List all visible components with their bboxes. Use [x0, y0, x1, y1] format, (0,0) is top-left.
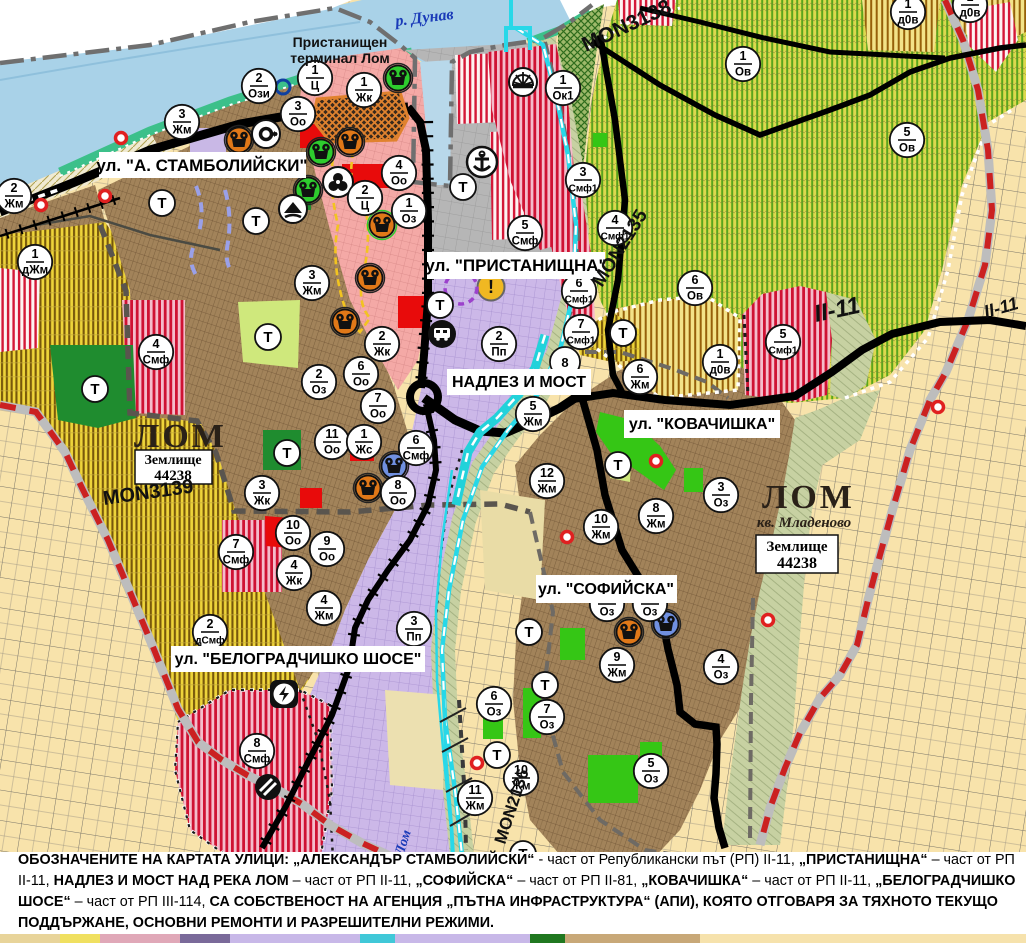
svg-text:Оз: Оз: [312, 385, 327, 397]
svg-text:Т: Т: [435, 297, 444, 314]
svg-text:1: 1: [32, 247, 39, 261]
svg-text:ОБОЗНАЧЕНИТЕ НА КАРТАТА УЛИЦИ:: ОБОЗНАЧЕНИТЕ НА КАРТАТА УЛИЦИ: „АЛЕКСАНД…: [18, 850, 1015, 868]
svg-text:4: 4: [718, 652, 725, 666]
svg-text:Ов: Ов: [735, 67, 751, 79]
svg-text:6: 6: [413, 433, 420, 447]
svg-text:5: 5: [530, 399, 537, 413]
svg-text:Т: Т: [251, 213, 260, 230]
svg-text:4: 4: [153, 337, 160, 351]
svg-text:5: 5: [522, 218, 529, 232]
svg-text:44238: 44238: [777, 555, 817, 572]
svg-text:Смф: Смф: [244, 754, 271, 766]
svg-text:Т: Т: [263, 329, 272, 346]
svg-text:6: 6: [692, 273, 699, 287]
svg-text:Жс: Жс: [355, 445, 373, 457]
svg-text:Оз: Оз: [643, 607, 658, 619]
svg-text:Жм: Жм: [537, 484, 557, 496]
svg-text:1: 1: [905, 0, 912, 11]
svg-text:1: 1: [717, 347, 724, 361]
svg-text:Жм: Жм: [302, 286, 322, 298]
svg-text:Жм: Жм: [314, 611, 334, 623]
svg-text:10: 10: [286, 518, 300, 532]
svg-text:Смф: Смф: [403, 451, 430, 463]
svg-text:Оз: Оз: [644, 774, 659, 786]
svg-text:дСмф: дСмф: [195, 635, 225, 647]
svg-text:3: 3: [411, 614, 418, 628]
svg-text:5: 5: [780, 327, 787, 341]
svg-text:10: 10: [594, 512, 608, 526]
svg-text:Жм: Жм: [607, 668, 627, 680]
svg-text:5: 5: [648, 756, 655, 770]
svg-text:ПОДДЪРЖАНЕ, ОСНОВНИ РЕМОНТИ И: ПОДДЪРЖАНЕ, ОСНОВНИ РЕМОНТИ И РАЗРЕШИТЕЛ…: [18, 915, 494, 931]
svg-text:2: 2: [207, 617, 214, 631]
svg-text:Т: Т: [618, 325, 627, 342]
svg-text:Ок1: Ок1: [552, 91, 574, 103]
svg-text:2: 2: [362, 183, 369, 197]
svg-text:Т: Т: [282, 445, 291, 462]
svg-text:1: 1: [560, 73, 567, 87]
svg-text:Т: Т: [458, 179, 467, 196]
svg-text:1: 1: [967, 0, 974, 4]
svg-text:Ц: Ц: [361, 201, 370, 213]
svg-text:Жм: Жм: [630, 380, 650, 392]
svg-text:Оо: Оо: [391, 176, 407, 188]
svg-text:4: 4: [612, 213, 619, 227]
svg-text:1: 1: [361, 427, 368, 441]
svg-text:Оз: Оз: [600, 607, 615, 619]
svg-text:2: 2: [316, 367, 323, 381]
svg-text:ул. "А. СТАМБОЛИЙСКИ": ул. "А. СТАМБОЛИЙСКИ": [96, 156, 307, 175]
svg-text:1: 1: [740, 49, 747, 63]
svg-text:!: !: [488, 277, 494, 297]
svg-text:д0в: д0в: [960, 8, 981, 20]
svg-text:Смф: Смф: [143, 355, 170, 367]
svg-text:Ов: Ов: [899, 143, 915, 155]
svg-text:д0в: д0в: [898, 15, 919, 27]
svg-text:ул. "ПРИСТАНИЩНА": ул. "ПРИСТАНИЩНА": [425, 256, 606, 275]
svg-text:Жм: Жм: [172, 125, 192, 137]
svg-text:Оо: Оо: [324, 445, 340, 457]
svg-text:НАДЛЕЗ И МОСТ: НАДЛЕЗ И МОСТ: [452, 374, 586, 391]
svg-text:II-11, НАДЛЕЗ И МОСТ НАД РЕКА: II-11, НАДЛЕЗ И МОСТ НАД РЕКА ЛОМ – част…: [18, 871, 1015, 889]
svg-text:Смф1: Смф1: [567, 335, 596, 347]
svg-text:Оз: Оз: [714, 670, 729, 682]
svg-text:4: 4: [396, 158, 403, 172]
svg-text:Землище: Землище: [144, 453, 201, 468]
svg-text:4: 4: [291, 558, 298, 572]
svg-text:6: 6: [637, 362, 644, 376]
svg-text:Оз: Оз: [540, 720, 555, 732]
svg-text:Пристанищен: Пристанищен: [293, 34, 388, 50]
svg-text:Оо: Оо: [390, 496, 406, 508]
svg-text:9: 9: [324, 534, 331, 548]
svg-text:Жк: Жк: [285, 576, 302, 588]
svg-text:11: 11: [468, 783, 481, 797]
svg-text:4: 4: [321, 593, 328, 607]
svg-text:6: 6: [491, 689, 498, 703]
svg-text:Т: Т: [492, 747, 501, 764]
svg-text:Смф: Смф: [223, 555, 250, 567]
svg-text:Ц: Ц: [311, 81, 320, 93]
svg-text:8: 8: [561, 355, 568, 370]
svg-text:Ози: Ози: [248, 89, 270, 101]
svg-text:терминал Лом: терминал Лом: [290, 50, 390, 66]
svg-text:Ов: Ов: [687, 291, 703, 303]
svg-text:Смф1: Смф1: [769, 345, 798, 357]
svg-text:Пп: Пп: [406, 632, 421, 644]
svg-text:3: 3: [179, 107, 186, 121]
svg-text:3: 3: [718, 480, 725, 494]
svg-text:7: 7: [375, 391, 382, 405]
svg-text:ЛОМ: ЛОМ: [762, 479, 855, 516]
svg-text:2: 2: [256, 71, 263, 85]
svg-text:Смф1: Смф1: [569, 183, 598, 195]
svg-text:7: 7: [578, 317, 585, 331]
svg-text:8: 8: [395, 478, 402, 492]
svg-text:Оо: Оо: [353, 377, 369, 389]
svg-text:Т: Т: [157, 195, 166, 212]
svg-text:Жм: Жм: [465, 801, 485, 813]
svg-text:3: 3: [580, 165, 587, 179]
svg-text:Смф1: Смф1: [565, 294, 594, 306]
svg-text:Оз: Оз: [487, 707, 502, 719]
svg-text:7: 7: [233, 537, 240, 551]
svg-text:ШОСЕ“ – част от РП III-114, СА: ШОСЕ“ – част от РП III-114, СА СОБСТВЕНО…: [18, 894, 998, 910]
svg-text:Т: Т: [524, 624, 533, 641]
svg-text:Пп: Пп: [491, 347, 506, 359]
svg-text:Т: Т: [613, 457, 622, 474]
svg-text:Оо: Оо: [285, 536, 301, 548]
svg-text:д0в: д0в: [710, 365, 731, 377]
svg-text:2: 2: [496, 329, 503, 343]
svg-text:ул. "БЕЛОГРАДЧИШКО ШОСЕ": ул. "БЕЛОГРАДЧИШКО ШОСЕ": [175, 651, 422, 668]
svg-text:Т: Т: [540, 677, 549, 694]
svg-text:3: 3: [259, 478, 266, 492]
svg-text:Жк: Жк: [373, 347, 390, 359]
svg-text:Жк: Жк: [355, 93, 372, 105]
svg-text:1: 1: [361, 75, 368, 89]
svg-text:кв. Младеново: кв. Младеново: [757, 515, 851, 531]
svg-text:Жм: Жм: [4, 199, 24, 211]
svg-text:Оо: Оо: [290, 117, 306, 129]
svg-text:3: 3: [295, 99, 302, 113]
svg-text:8: 8: [653, 501, 660, 515]
svg-text:Оз: Оз: [714, 498, 729, 510]
svg-text:Жм: Жм: [523, 417, 543, 429]
svg-text:Землище: Землище: [766, 539, 828, 555]
svg-text:3: 3: [309, 268, 316, 282]
svg-text:дЖм: дЖм: [22, 265, 48, 277]
svg-text:Смф: Смф: [512, 236, 539, 248]
svg-text:8: 8: [254, 736, 261, 750]
svg-text:Жк: Жк: [253, 496, 270, 508]
svg-text:11: 11: [325, 427, 338, 441]
svg-text:12: 12: [540, 466, 554, 480]
svg-text:Оз: Оз: [402, 214, 417, 226]
svg-text:Т: Т: [90, 381, 99, 398]
svg-text:ул. "СОФИЙСКА": ул. "СОФИЙСКА": [538, 579, 674, 598]
svg-text:ул. "КОВАЧИШКА": ул. "КОВАЧИШКА": [629, 416, 775, 433]
svg-text:2: 2: [11, 181, 18, 195]
svg-text:2: 2: [379, 329, 386, 343]
svg-text:Оо: Оо: [319, 552, 335, 564]
svg-text:Жм: Жм: [646, 519, 666, 531]
svg-text:1: 1: [406, 196, 413, 210]
svg-text:7: 7: [544, 702, 551, 716]
svg-text:9: 9: [614, 650, 621, 664]
svg-text:5: 5: [904, 125, 911, 139]
svg-text:6: 6: [358, 359, 365, 373]
svg-text:Оо: Оо: [370, 409, 386, 421]
svg-text:Жм: Жм: [591, 530, 611, 542]
